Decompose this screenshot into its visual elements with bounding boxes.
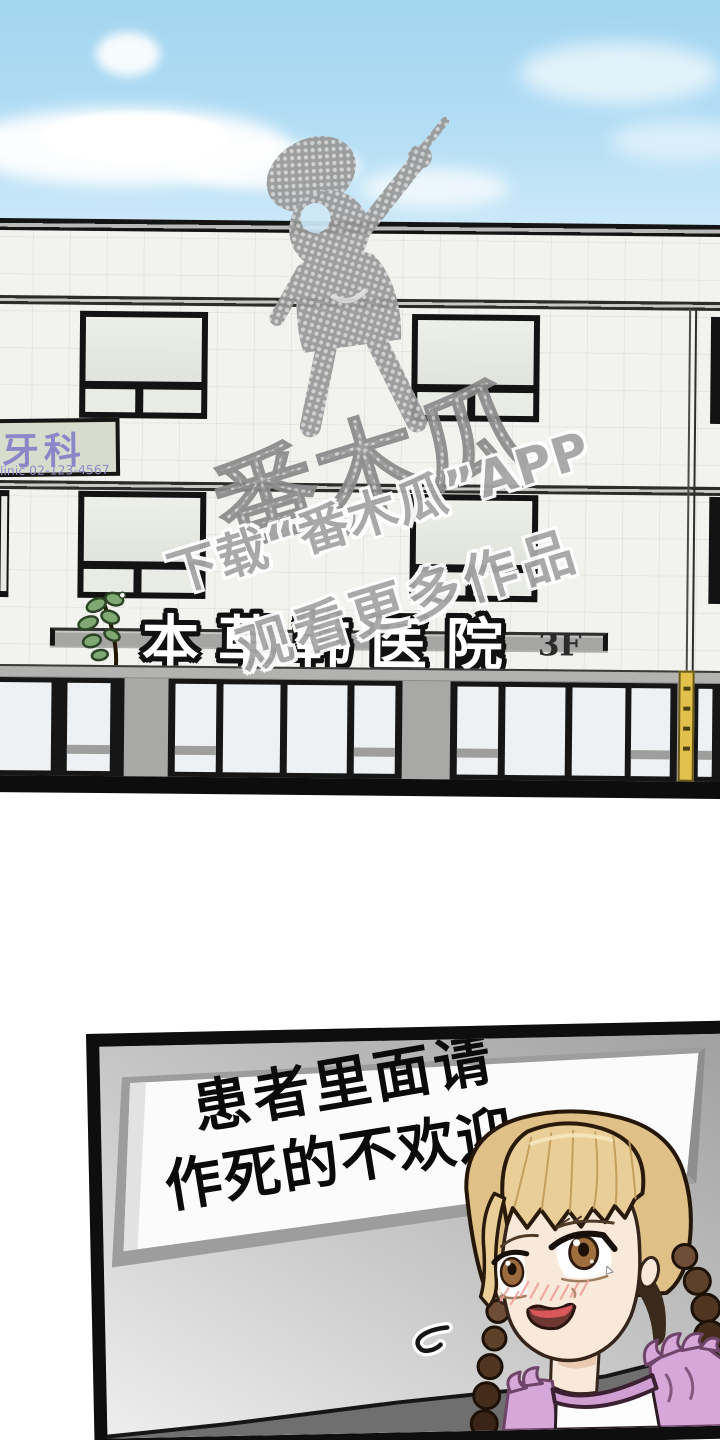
yellow-door-sign xyxy=(678,671,695,782)
ground-floor xyxy=(0,664,720,782)
plant-decoration xyxy=(76,589,149,670)
dental-sign-phone: clinic 02-123-4567 xyxy=(0,462,110,478)
dental-clinic-sign: 牙科 clinic 02-123-4567 xyxy=(0,418,120,478)
window-partial xyxy=(0,490,9,597)
window-partial xyxy=(710,317,720,424)
storefront-windows xyxy=(168,679,403,779)
window-partial xyxy=(708,497,720,604)
storefront-windows xyxy=(450,681,678,781)
comic-page: 牙科 clinic 02-123-4567 本草韩医院 3F xyxy=(0,0,720,1440)
interior-scene: 患者里面请 作死的不欢迎 xyxy=(99,1033,720,1438)
panel-building-exterior: 牙科 clinic 02-123-4567 本草韩医院 3F xyxy=(0,0,720,792)
cloud xyxy=(96,32,160,76)
storefront-windows xyxy=(0,677,125,777)
storefront-windows xyxy=(694,684,720,782)
panel-interior: 患者里面请 作死的不欢迎 xyxy=(86,1020,720,1440)
